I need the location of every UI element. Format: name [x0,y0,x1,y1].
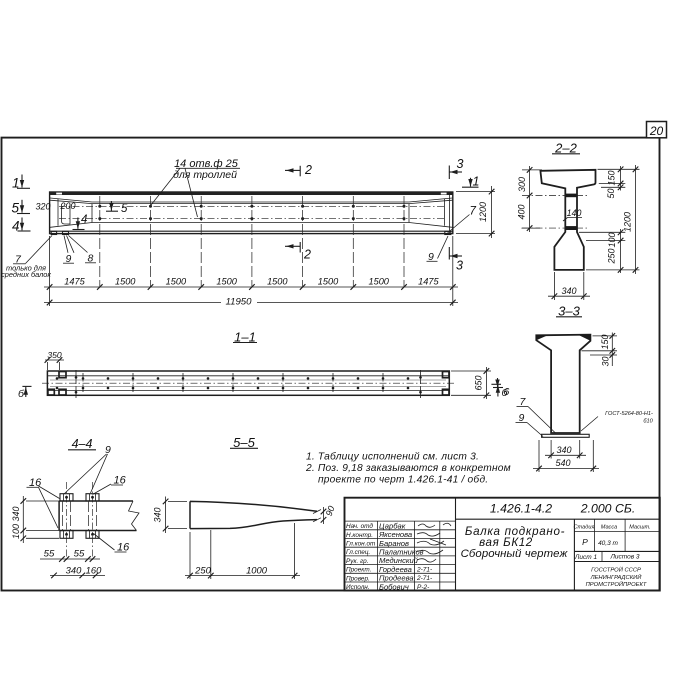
svg-text:55: 55 [44,549,55,560]
svg-text:Гордеева: Гордеева [379,565,412,574]
svg-text:50: 50 [606,188,616,198]
svg-text:1000: 1000 [246,565,268,576]
svg-text:Исполн.: Исполн. [346,584,370,591]
svg-text:4–4: 4–4 [72,437,93,451]
svg-text:1500: 1500 [166,277,187,287]
svg-text:4: 4 [81,214,87,226]
svg-text:Яксенова: Яксенова [378,530,412,539]
svg-text:340: 340 [153,507,163,522]
svg-text:150: 150 [600,334,610,349]
svg-text:Масса: Масса [601,525,618,531]
svg-text:1475: 1475 [418,277,439,287]
svg-text:650: 650 [474,375,484,390]
svg-text:6: 6 [504,386,510,398]
svg-text:Провер.: Провер. [346,575,370,582]
svg-text:340: 340 [556,445,571,455]
svg-text:Лист 1: Лист 1 [574,554,598,561]
svg-text:1475: 1475 [64,277,85,287]
svg-text:Сборочный чертеж: Сборочный чертеж [461,548,569,560]
svg-text:ЛЕНИНГРАДСКИЙ: ЛЕНИНГРАДСКИЙ [590,573,643,581]
svg-text:Гл.спец.: Гл.спец. [346,549,370,556]
svg-text:350: 350 [47,350,62,360]
svg-text:2. Поз. 9,18 заказываются в ко: 2. Поз. 9,18 заказываются в конкретном [305,463,511,474]
svg-text:Палатников: Палатников [379,548,424,557]
svg-text:Гл.кон.от: Гл.кон.от [346,541,376,548]
svg-text:1500: 1500 [318,277,339,287]
svg-text:Царбак: Царбак [379,521,406,530]
svg-text:5: 5 [121,203,128,215]
svg-text:Н.контр.: Н.контр. [346,532,373,539]
svg-text:Масшт.: Масшт. [629,525,650,531]
svg-text:ГОССТРОЙ СССР: ГОССТРОЙ СССР [591,566,641,574]
svg-text:2: 2 [303,248,311,262]
svg-text:Бобович: Бобович [379,582,409,591]
svg-text:для троллей: для троллей [173,169,237,181]
svg-text:540: 540 [555,458,570,468]
svg-text:2-71-: 2-71- [416,567,433,574]
svg-text:1200: 1200 [622,212,632,232]
svg-text:Рук. гр.: Рук. гр. [346,558,369,565]
svg-text:1: 1 [473,175,480,189]
svg-text:300: 300 [517,177,527,192]
svg-text:б10: б10 [643,419,653,425]
svg-text:160: 160 [86,565,102,576]
svg-text:Нач. отд: Нач. отд [346,522,373,530]
svg-text:Листов 3: Листов 3 [609,554,639,561]
svg-text:Баранов: Баранов [379,539,409,548]
svg-text:400: 400 [517,204,527,219]
svg-text:55: 55 [74,549,85,560]
svg-text:1200: 1200 [478,202,488,222]
svg-text:100: 100 [607,232,617,247]
svg-text:200: 200 [59,201,75,211]
svg-text:средних балок: средних балок [1,270,51,279]
svg-text:2.000 СБ.: 2.000 СБ. [580,502,636,516]
svg-text:250: 250 [194,565,211,576]
svg-text:1500: 1500 [368,277,389,287]
svg-text:3: 3 [457,157,464,171]
svg-text:2: 2 [304,163,312,177]
svg-text:1500: 1500 [216,277,237,287]
svg-text:340: 340 [561,286,576,296]
svg-text:3: 3 [456,259,463,273]
svg-text:Р-2-: Р-2- [417,584,430,591]
svg-text:40,3 т: 40,3 т [598,540,618,547]
svg-text:1.426.1-4.2: 1.426.1-4.2 [490,502,552,516]
svg-text:1500: 1500 [115,277,136,287]
svg-text:11950: 11950 [226,297,253,308]
svg-text:320: 320 [35,202,50,212]
svg-text:150: 150 [607,170,617,185]
svg-text:20: 20 [649,124,664,138]
svg-text:ПРОМСТРОЙПРОЕКТ: ПРОМСТРОЙПРОЕКТ [586,580,647,588]
svg-text:проекте по черт 1.426.1-41 / о: проекте по черт 1.426.1-41 / обд. [318,474,488,486]
svg-text:Р: Р [582,537,588,547]
svg-text:Проект.: Проект. [346,567,371,574]
svg-text:7: 7 [470,206,477,218]
svg-text:30: 30 [601,356,611,366]
svg-text:340: 340 [11,506,21,521]
svg-text:1. Таблицу исполнений см. лис: 1. Таблицу исполнений см. лист 3. [306,451,479,463]
svg-text:2-71-: 2-71- [416,575,433,582]
svg-text:340: 340 [66,565,82,576]
svg-text:Продеева: Продеева [379,574,414,583]
svg-text:140: 140 [567,208,582,218]
svg-text:100: 100 [11,524,21,539]
svg-text:250: 250 [607,248,617,264]
svg-text:ГОСТ-5264-80-Н1-: ГОСТ-5264-80-Н1- [605,411,653,417]
svg-text:1500: 1500 [267,277,288,287]
svg-text:Мединский: Мединский [379,556,419,565]
svg-text:Стадия: Стадия [574,525,595,531]
